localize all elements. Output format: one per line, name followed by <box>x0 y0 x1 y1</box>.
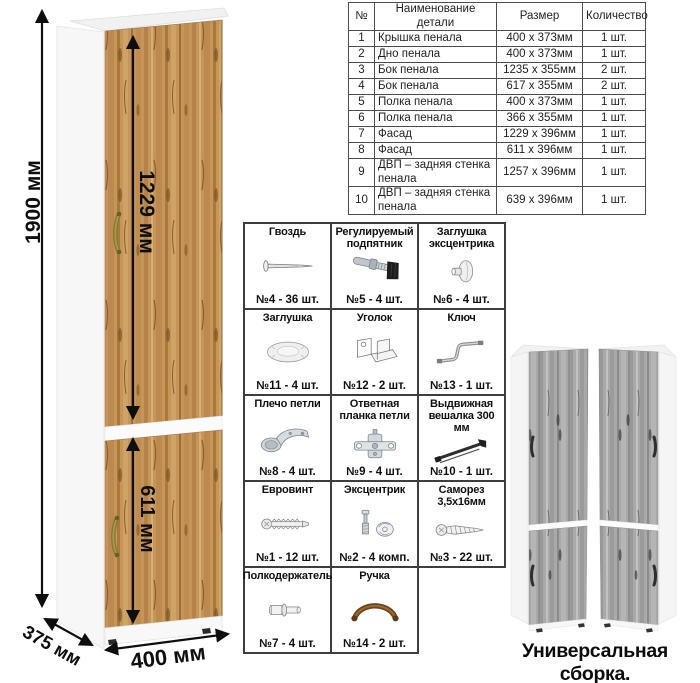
hardware-row: Плечо петли №8 - 4 шт. Ответная планка п… <box>244 395 505 481</box>
table-row: 2Дно пенала400 х 373мм1 шт. <box>349 47 646 63</box>
part-number: 2 <box>349 47 375 63</box>
part-qty: 1 шт. <box>583 47 646 63</box>
table-row: 3Бок пенала1235 х 355мм2 шт. <box>349 63 646 79</box>
screw-icon <box>424 514 500 546</box>
part-size: 400 х 373мм <box>497 31 583 47</box>
col-header-size: Размер <box>497 3 583 31</box>
corner-bracket-icon <box>337 336 413 368</box>
part-name: Бок пенала <box>375 63 497 79</box>
variant-left-upper-door <box>529 349 588 525</box>
hardware-cell: Полкодержатель №7 - 4 шт. <box>244 567 331 653</box>
hardware-cell: Регулируемый подпятник №5 - 4 шт. <box>331 223 418 309</box>
assembly-sheet: 1900 мм 1229 мм 611 мм 400 мм 375 мм <box>0 0 700 683</box>
hardware-cell: Гвоздь №4 - 36 шт. <box>244 223 331 309</box>
cam-cap-icon <box>424 256 500 288</box>
upper-door-dimension-label: 1229 мм <box>135 170 158 254</box>
table-row: 4Бок пенала617 х 355мм2 шт. <box>349 79 646 95</box>
part-name: Полка пенала <box>375 95 497 111</box>
hardware-item-count: №3 - 22 шт. <box>430 552 493 564</box>
part-qty: 1 шт. <box>583 95 646 111</box>
part-name: Крышка пенала <box>375 31 497 47</box>
part-number: 7 <box>349 127 375 143</box>
variant-right-side <box>659 352 676 624</box>
part-number: 1 <box>349 31 375 47</box>
cabinet-foot <box>202 628 211 634</box>
hardware-item-title: Ключ <box>447 312 475 324</box>
cam-lock-icon <box>337 508 413 540</box>
hardware-cell: Евровинт №1 - 12 шт. <box>244 481 331 567</box>
part-number: 6 <box>349 111 375 127</box>
part-name: Фасад <box>375 143 497 159</box>
hardware-cell: Уголок №12 - 2 шт. <box>331 309 418 395</box>
height-dimension-label: 1900 мм <box>22 160 45 244</box>
hardware-item-count: №14 - 2 шт. <box>343 638 406 650</box>
part-size: 400 х 373мм <box>497 47 583 63</box>
hardware-cell: Саморез 3,5х16мм №3 - 22 шт. <box>418 481 505 567</box>
part-qty: 1 шт. <box>583 187 646 215</box>
hardware-item-count: №2 - 4 комп. <box>339 552 409 564</box>
variant-left-side <box>511 352 528 624</box>
hardware-item-count: №1 - 12 шт. <box>256 552 319 564</box>
hardware-item-count: №6 - 4 шт. <box>433 294 489 306</box>
col-header-name: Наименование детали <box>375 3 497 31</box>
col-header-number: № <box>349 3 375 31</box>
hardware-item-count: №11 - 4 шт. <box>256 380 318 392</box>
assembled-variants-drawing <box>511 345 676 633</box>
part-qty: 1 шт. <box>583 127 646 143</box>
variant-right-upper-door <box>599 349 658 525</box>
hardware-cell: Эксцентрик №2 - 4 комп. <box>331 481 418 567</box>
hardware-item-count: №4 - 36 шт. <box>256 294 319 306</box>
table-row: 1Крышка пенала400 х 373мм1 шт. <box>349 31 646 47</box>
part-qty: 1 шт. <box>583 31 646 47</box>
adjustable-foot-icon <box>337 256 413 288</box>
part-name: Дно пенала <box>375 47 497 63</box>
part-qty: 1 шт. <box>583 111 646 127</box>
part-qty: 2 шт. <box>583 79 646 95</box>
hardware-cell: Заглушка №11 - 4 шт. <box>244 309 331 395</box>
col-header-qty: Количество <box>583 3 646 31</box>
parts-table: № Наименование детали Размер Количество … <box>348 2 646 215</box>
part-name: Бок пенала <box>375 79 497 95</box>
part-qty: 1 шт. <box>583 159 646 187</box>
hardware-item-count: №8 - 4 шт. <box>259 466 315 478</box>
hardware-cell: Ключ №13 - 1 шт. <box>418 309 505 395</box>
part-size: 1229 х 396мм <box>497 127 583 143</box>
hardware-item-title: Заглушка эксцентрика <box>420 226 503 250</box>
handle-icon <box>337 594 413 626</box>
table-row: 7Фасад1229 х 396мм1 шт. <box>349 127 646 143</box>
hardware-item-title: Евровинт <box>262 484 314 496</box>
upper-door <box>105 20 222 427</box>
part-name: ДВП – задняя стенка пенала <box>375 187 497 215</box>
hardware-cell: Плечо петли №8 - 4 шт. <box>244 395 331 481</box>
part-qty: 2 шт. <box>583 63 646 79</box>
hardware-item-title: Эксцентрик <box>344 484 405 496</box>
table-row: 10ДВП – задняя стенка пенала639 х 396мм1… <box>349 187 646 215</box>
part-number: 9 <box>349 159 375 187</box>
part-size: 366 х 355мм <box>497 111 583 127</box>
part-number: 4 <box>349 79 375 95</box>
part-number: 10 <box>349 187 375 215</box>
hardware-item-title: Гвоздь <box>269 226 306 238</box>
variant-right-handle <box>654 566 656 585</box>
cap-icon <box>250 336 326 368</box>
hinge-arm-icon <box>250 422 326 454</box>
universal-assembly-caption: Универсальная сборка. <box>490 640 700 683</box>
part-size: 1257 х 396мм <box>497 159 583 187</box>
hardware-item-title: Саморез 3,5х16мм <box>420 484 503 508</box>
variant-right-handle <box>654 437 656 456</box>
hardware-cell: Ручка №14 - 2 шт. <box>331 567 418 653</box>
table-row: 9ДВП – задняя стенка пенала1257 х 396мм1… <box>349 159 646 187</box>
confirmat-screw-icon <box>250 508 326 540</box>
hardware-item-title: Полкодержатель <box>243 570 332 582</box>
part-name: Фасад <box>375 127 497 143</box>
hardware-item-title: Заглушка <box>263 312 312 324</box>
variant-left-handle <box>532 437 534 456</box>
part-name: ДВП – задняя стенка пенала <box>375 159 497 187</box>
hardware-cell: Заглушка эксцентрика №6 - 4 шт. <box>418 223 505 309</box>
part-size: 639 х 396мм <box>497 187 583 215</box>
parts-table-header-row: № Наименование детали Размер Количество <box>349 3 646 31</box>
hardware-item-count: №10 - 1 шт. <box>430 466 493 478</box>
part-number: 3 <box>349 63 375 79</box>
table-row: 6Полка пенала366 х 355мм1 шт. <box>349 111 646 127</box>
variant-left-lower-door <box>529 526 587 625</box>
hardware-item-count: №5 - 4 шт. <box>346 294 402 306</box>
lower-door <box>105 430 222 628</box>
hardware-item-count: №7 - 4 шт. <box>259 638 315 650</box>
cabinet-foot <box>108 639 117 645</box>
hardware-row: Заглушка №11 - 4 шт. Уголок <box>244 309 505 395</box>
hardware-item-title: Плечо петли <box>254 398 320 410</box>
variant-right-lower-door <box>600 526 658 625</box>
cabinet-side-panel <box>57 26 104 649</box>
hinge-plate-icon <box>337 428 413 460</box>
hardware-item-title: Ответная планка петли <box>333 398 416 422</box>
part-size: 1235 х 355мм <box>497 63 583 79</box>
hardware-item-title: Регулируемый подпятник <box>333 226 416 250</box>
hardware-row: Евровинт №1 - 12 шт. Эксцентрик <box>244 481 505 567</box>
table-row: 5Полка пенала400 х 373мм1 шт. <box>349 95 646 111</box>
lower-door-dimension-label: 611 мм <box>136 485 158 552</box>
part-number: 5 <box>349 95 375 111</box>
part-size: 400 х 373мм <box>497 95 583 111</box>
hardware-cell: Выдвижная вешалка 300 мм №10 - 1 шт. <box>418 395 505 481</box>
hardware-item-title: Ручка <box>359 570 389 582</box>
part-size: 617 х 355мм <box>497 79 583 95</box>
hardware-row: Полкодержатель №7 - 4 шт. Ручка <box>244 567 505 653</box>
variant-left-handle <box>532 566 534 585</box>
hardware-row: Гвоздь №4 - 36 шт. Регулируемый подпятни… <box>244 223 505 309</box>
pullout-hanger-icon <box>424 434 500 466</box>
hardware-item-count: №13 - 1 шт. <box>430 380 493 392</box>
hardware-item-title: Уголок <box>357 312 392 324</box>
hardware-item-count: №12 - 2 шт. <box>343 380 406 392</box>
hardware-grid: Гвоздь №4 - 36 шт. Регулируемый подпятни… <box>243 222 506 654</box>
pencil-cabinet-drawing <box>57 8 228 649</box>
table-row: 8Фасад611 х 396мм1 шт. <box>349 143 646 159</box>
hardware-item-count: №9 - 4 шт. <box>346 466 402 478</box>
nail-icon <box>250 250 326 282</box>
part-qty: 1 шт. <box>583 143 646 159</box>
part-number: 8 <box>349 143 375 159</box>
hardware-cell: Ответная планка петли №9 - 4 шт. <box>331 395 418 481</box>
part-name: Полка пенала <box>375 111 497 127</box>
hardware-item-title: Выдвижная вешалка 300 мм <box>420 398 503 434</box>
part-size: 611 х 396мм <box>497 143 583 159</box>
shelf-pin-icon <box>250 594 326 626</box>
cam-key-icon <box>424 336 500 368</box>
